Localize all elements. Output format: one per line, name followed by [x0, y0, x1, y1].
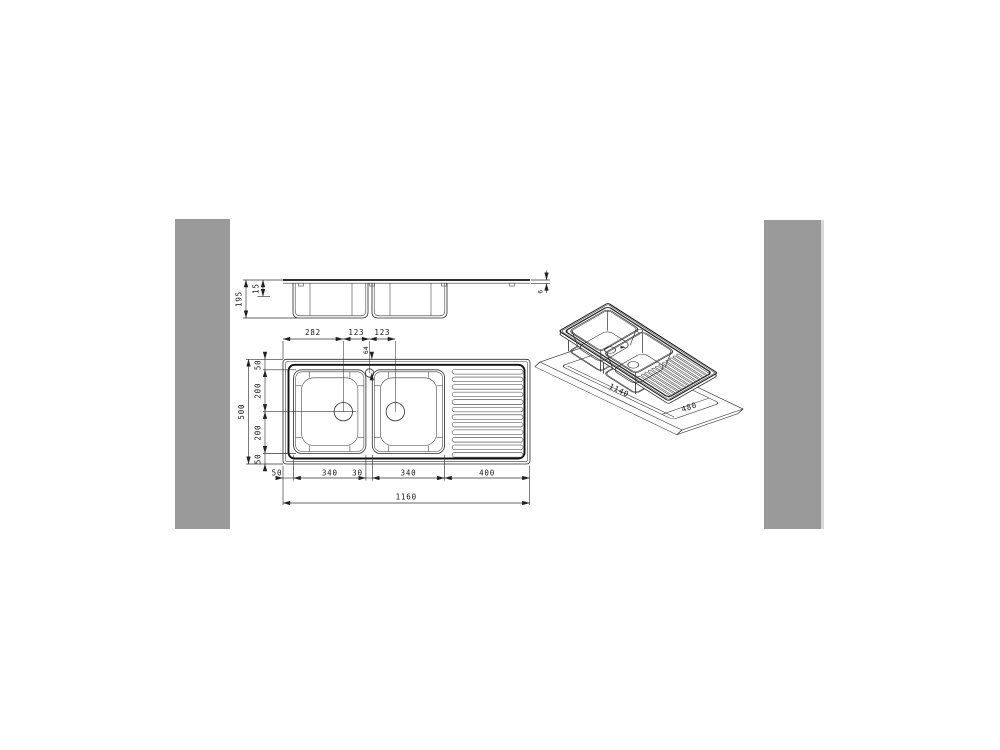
isometric-view: 1140 480: [531, 303, 746, 435]
label-bot-400: 400: [479, 469, 495, 478]
dim-bottom-chain: 50 340 30 340 400 1160: [272, 455, 530, 505]
iso-sink: [547, 303, 720, 409]
label-bot-30: 30: [352, 469, 363, 478]
mounting-clips: [299, 283, 515, 286]
label-282: 282: [305, 328, 321, 337]
label-15: 15: [252, 283, 261, 294]
label-195: 195: [235, 291, 244, 307]
drainer-ribs: [452, 370, 523, 458]
side-elevation-view: 195 15 6: [235, 271, 551, 319]
dim-side-195: 195: [235, 280, 298, 318]
dim-side-6: 6: [531, 271, 550, 294]
label-left-50b: 50: [254, 453, 263, 464]
side-bowl-2: [372, 283, 447, 318]
label-500: 500: [237, 404, 246, 420]
plan-view: 282 123 123 64: [237, 328, 530, 505]
dim-tap-offset-64: 64: [363, 346, 372, 381]
label-bot-50: 50: [272, 469, 283, 478]
label-6: 6: [538, 289, 545, 293]
sink-technical-drawing: 195 15 6: [0, 0, 1000, 750]
label-480: 480: [680, 400, 698, 414]
label-left-200b: 200: [254, 425, 263, 441]
label-left-200a: 200: [254, 383, 263, 399]
label-123-a: 123: [348, 328, 364, 337]
label-123-b: 123: [374, 328, 390, 337]
label-64: 64: [363, 346, 370, 354]
dim-left-chain: 50 200 200 50 500: [237, 353, 356, 471]
label-bot-340a: 340: [322, 469, 338, 478]
drawing-canvas: 195 15 6: [0, 0, 1000, 750]
deck-top: [559, 303, 717, 401]
label-bot-340b: 340: [401, 469, 417, 478]
label-1160: 1160: [396, 493, 417, 502]
dim-side-15: 15: [252, 280, 271, 297]
side-bowl-1: [293, 283, 368, 318]
plan-bowl-2: [372, 370, 444, 454]
bowl-2-corner-ticks: [374, 372, 442, 452]
label-left-50a: 50: [254, 359, 263, 370]
